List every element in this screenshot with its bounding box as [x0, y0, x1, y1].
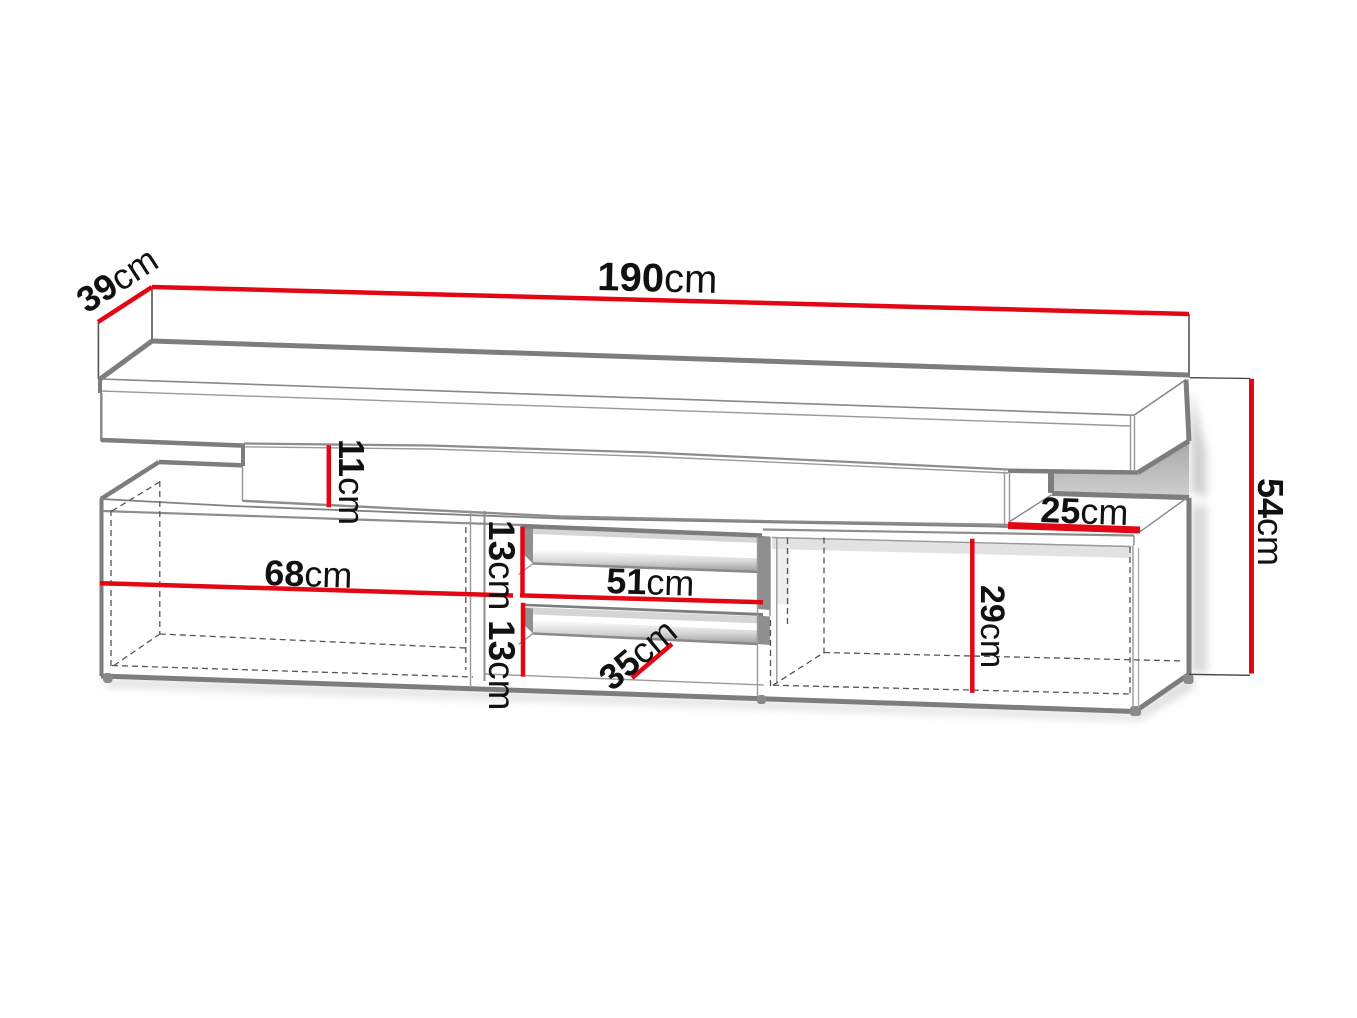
svg-text:11cm: 11cm — [331, 439, 372, 525]
svg-text:25cm: 25cm — [1040, 489, 1129, 533]
svg-text:51cm: 51cm — [606, 560, 695, 604]
svg-text:68cm: 68cm — [264, 552, 353, 596]
svg-text:29cm: 29cm — [973, 585, 1011, 668]
svg-text:54cm: 54cm — [1250, 478, 1291, 566]
svg-text:13cm: 13cm — [481, 620, 522, 710]
svg-text:13cm: 13cm — [481, 520, 522, 610]
svg-text:190cm: 190cm — [597, 255, 718, 302]
